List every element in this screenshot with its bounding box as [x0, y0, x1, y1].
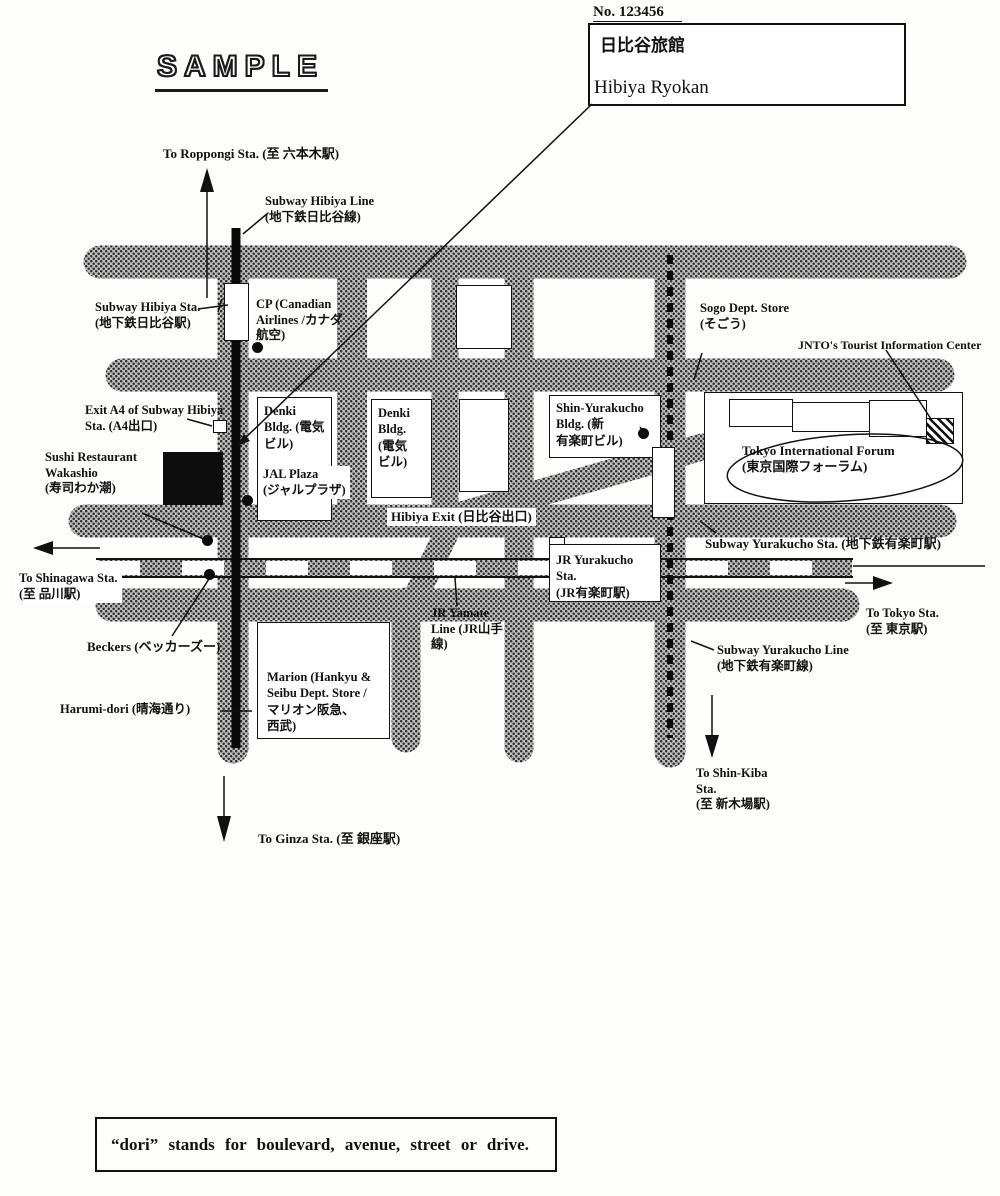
- subway-hibiya-line-label: Subway Hibiya Line (地下鉄日比谷線): [265, 194, 374, 225]
- up-arrow-icon: [200, 168, 214, 192]
- building-block: [456, 285, 512, 349]
- wakashio-pointer: [142, 513, 206, 540]
- jr-yurakucho-station-label: JR Yurakucho Sta. (JR有楽町駅): [550, 545, 660, 608]
- jnto-office-marker: [926, 418, 954, 444]
- title-pointer-arrowhead: [237, 434, 250, 446]
- subway-hibiya-station-label: Subway Hibiya Sta. (地下鉄日比谷駅): [95, 300, 200, 331]
- yamate-pointer: [455, 578, 457, 606]
- roads: [85, 262, 950, 752]
- sogo-pointer: [694, 353, 702, 380]
- to-shin-kiba-label: To Shin-Kiba Sta. (至 新木場駅): [696, 766, 770, 813]
- subway-yurakucho-station-label: Subway Yurakucho Sta. (地下鉄有楽町駅): [705, 536, 941, 552]
- jnto-tourist-info-label: JNTO's Tourist Information Center: [798, 338, 981, 353]
- to-tokyo-label: To Tokyo Sta. (至 東京駅): [866, 606, 939, 637]
- yurakucho-line-pointer: [691, 641, 714, 650]
- sushi-wakashio-label: Sushi Restaurant Wakashio (寿司わか潮): [45, 450, 137, 497]
- left-arrow-icon: [33, 541, 53, 555]
- hotel-name-english: Hibiya Ryokan: [594, 77, 709, 99]
- sogo-dept-store-label: Sogo Dept. Store (そごう): [700, 301, 789, 332]
- jal-plaza-label: JAL Plaza (ジャルプラザ): [259, 466, 350, 499]
- road-network: [0, 0, 1000, 1196]
- down-arrow-shinkiba-icon: [705, 735, 719, 758]
- jr-yamate-line-label: JR Yamate Line (JR山手 線): [431, 606, 503, 653]
- yurakucho-sta-pointer: [700, 521, 716, 533]
- beckers-label: Beckers (ベッカーズー): [87, 639, 220, 655]
- forum-block-2: [792, 402, 870, 432]
- shin-yurakucho-bldg-label: Shin-Yurakucho Bldg. (新 有楽町ビル): [550, 396, 660, 453]
- marion-label: Marion (Hankyu & Seibu Dept. Store / マリオ…: [258, 623, 389, 734]
- tokyo-forum-label: Tokyo International Forum (東京国際フォーラム): [742, 443, 895, 476]
- denki-bldg-1-label: Denki Bldg. (電気 ビル): [258, 398, 331, 457]
- jal-plaza-dot-marker: [242, 495, 253, 506]
- marion-bldg: Marion (Hankyu & Seibu Dept. Store / マリオ…: [257, 622, 390, 739]
- jr-yurakucho-station-box: JR Yurakucho Sta. (JR有楽町駅): [549, 544, 661, 602]
- hibiya-sta-tick: [218, 299, 222, 312]
- beckers-pointer: [172, 579, 209, 636]
- wakashio-dot-marker: [202, 535, 213, 546]
- denki-bldg-2-label: Denki Bldg. (電気 ビル): [372, 400, 431, 475]
- annotation-overlay: [0, 0, 1000, 1196]
- hibiya-exit-label: Hibiya Exit (日比谷出口): [387, 508, 536, 526]
- jr-yamate-railway: [96, 559, 985, 577]
- exit-a4-label: Exit A4 of Subway Hibiya Sta. (A4出口): [85, 403, 223, 434]
- subway-yurakucho-station-marker: [652, 447, 675, 518]
- cp-canadian-airlines-label: CP (Canadian Airlines /カナダ 航空): [256, 297, 342, 344]
- shin-yurakucho-dot-marker: [638, 428, 649, 439]
- shin-yurakucho-bldg: Shin-Yurakucho Bldg. (新 有楽町ビル): [549, 395, 661, 458]
- subway-hibiya-station-marker: [224, 283, 249, 341]
- to-shinagawa-label: To Shinagawa Sta. (至 品川駅): [15, 570, 122, 603]
- building-block: [459, 399, 509, 492]
- scanned-map-document: Denki Bldg. (電気 ビル) Denki Bldg. (電気 ビル) …: [0, 0, 1000, 1196]
- denki-bldg-2: Denki Bldg. (電気 ビル): [371, 399, 432, 498]
- forum-block-3: [869, 400, 927, 437]
- footnote-text: “dori” stands for boulevard, avenue, str…: [97, 1135, 529, 1155]
- subway-yurakucho-line-label: Subway Yurakucho Line (地下鉄有楽町線): [717, 643, 849, 674]
- to-roppongi-label: To Roppongi Sta. (至 六本木駅): [163, 146, 339, 162]
- footnote-box: “dori” stands for boulevard, avenue, str…: [95, 1117, 557, 1172]
- document-number: No. 123456: [593, 4, 682, 22]
- denki-bldg-1: Denki Bldg. (電気 ビル): [257, 397, 332, 521]
- hotel-title-box: 日比谷旅館 Hibiya Ryokan: [588, 23, 906, 106]
- harumi-dori-label: Harumi-dori (晴海通り): [60, 702, 190, 718]
- hibiya-ryokan-location-marker: [163, 452, 223, 505]
- right-arrow-icon: [873, 576, 893, 590]
- beckers-dot-marker: [204, 569, 215, 580]
- forum-block-1: [729, 399, 793, 427]
- down-arrow-ginza-icon: [217, 816, 231, 842]
- hotel-name-japanese: 日比谷旅館: [600, 31, 685, 56]
- to-ginza-label: To Ginza Sta. (至 銀座駅): [258, 831, 400, 847]
- sample-watermark: SAMPLE: [155, 50, 328, 92]
